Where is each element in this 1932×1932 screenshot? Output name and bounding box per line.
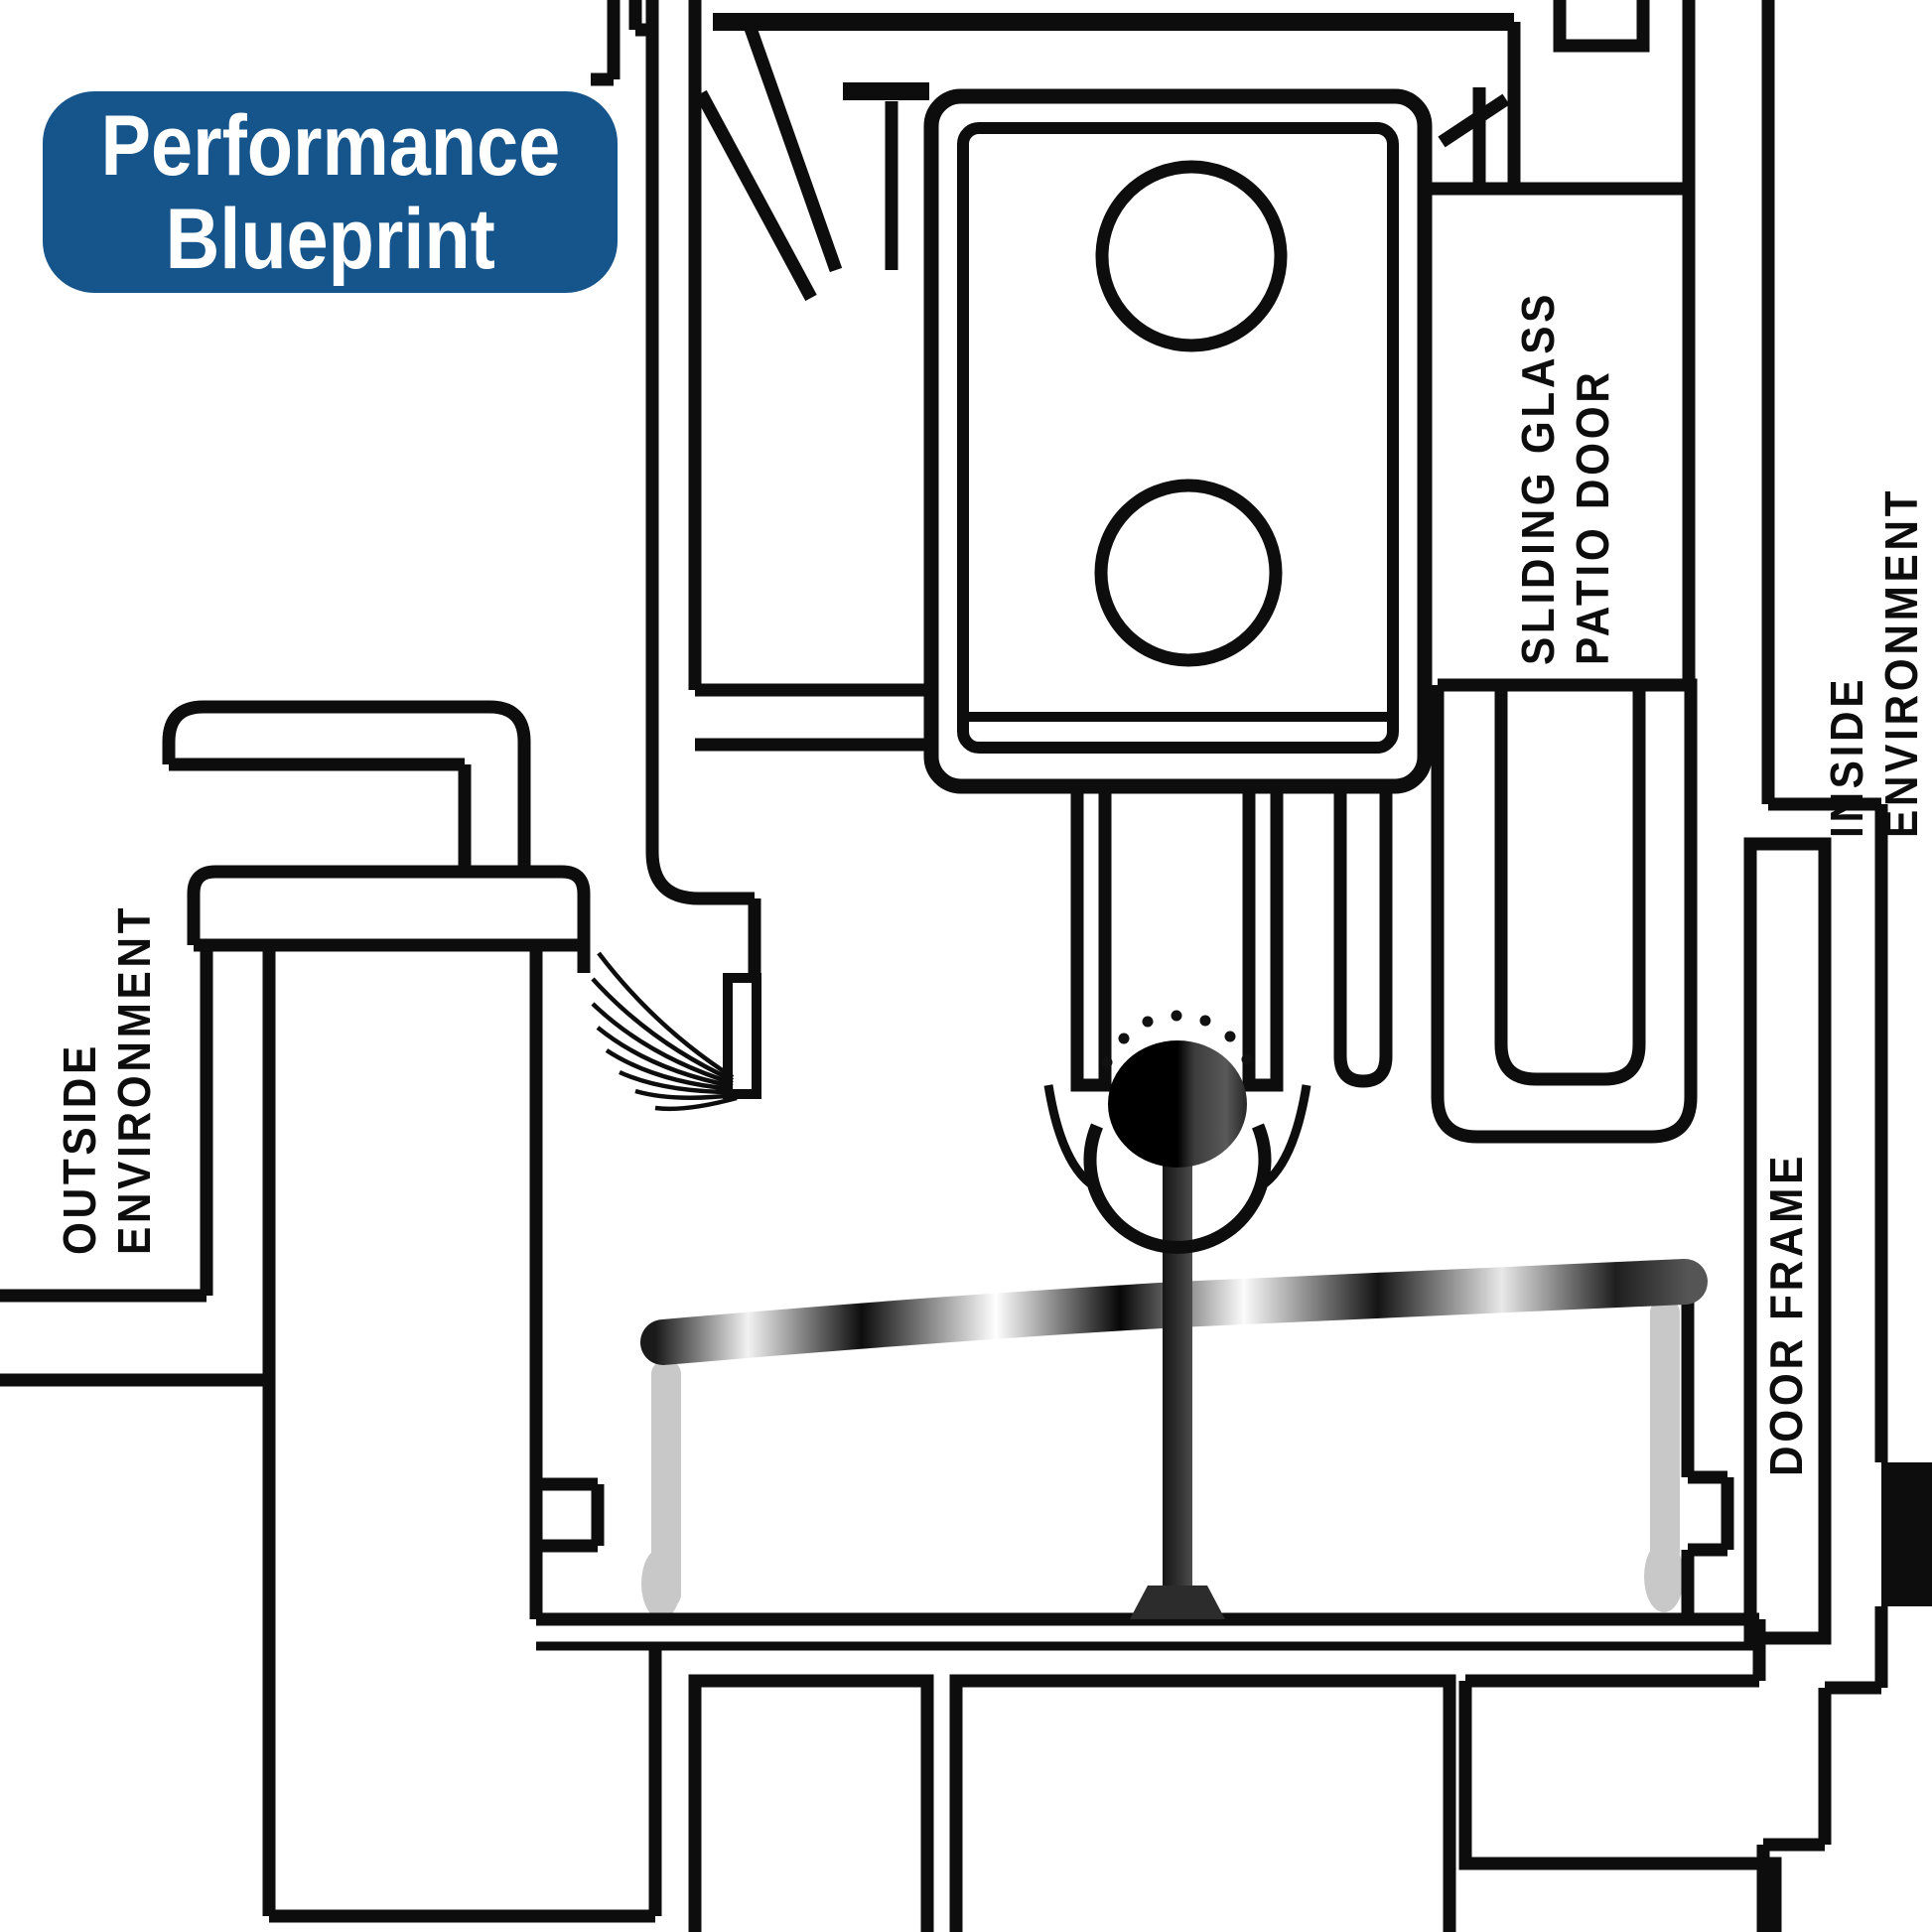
roller-wheel	[1108, 1040, 1247, 1168]
sill-shade-left-foot	[641, 1548, 681, 1619]
stem-base	[1130, 1586, 1225, 1619]
performance-blueprint-diagram: Performance Blueprint SLIDING GLASS PATI…	[0, 0, 1932, 1932]
sill-shade-right	[1650, 1299, 1680, 1567]
performance-blueprint-badge: Performance Blueprint	[43, 91, 618, 293]
bottom-profiles	[695, 1681, 1775, 1932]
sill-chamber	[536, 1282, 1759, 1681]
black-end-cap	[1881, 1462, 1932, 1606]
screw-boss-upper	[1102, 167, 1281, 345]
label-outside-environment: OUTSIDE ENVIRONMENT	[53, 778, 162, 1255]
label-sliding-glass-patio-door: SLIDING GLASS PATIO DOOR	[1511, 228, 1620, 665]
label-inside-environment: INSIDE ENVIRONMENT	[1820, 381, 1929, 838]
brush-seal	[593, 953, 737, 1109]
sill-shade-right-foot	[1644, 1541, 1684, 1612]
glass-panes	[1077, 786, 1277, 1085]
interlock-channel	[1340, 786, 1386, 1081]
roller-assembly	[1048, 786, 1307, 1619]
label-door-frame: DOOR FRAME	[1759, 1109, 1819, 1476]
screw-boss-lower	[1101, 485, 1276, 660]
badge-line-1: Performance	[100, 99, 560, 193]
weatherstrip-pocket	[1438, 685, 1691, 1137]
roller-stem	[1163, 1142, 1192, 1619]
door-panel	[931, 96, 1425, 786]
badge-line-2: Blueprint	[165, 193, 494, 286]
